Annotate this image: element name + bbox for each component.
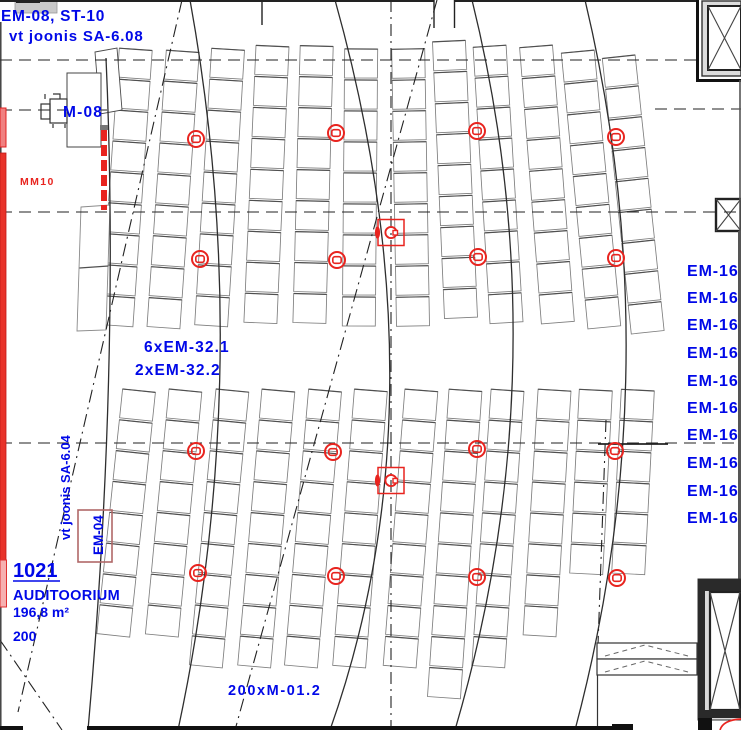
svg-text:MM10: MM10 xyxy=(20,176,55,188)
svg-text:EM-16: EM-16 xyxy=(687,290,739,307)
svg-text:EM-16: EM-16 xyxy=(687,400,739,417)
svg-text:6xEM-32.1: 6xEM-32.1 xyxy=(144,339,230,356)
svg-text:200xM-01.2: 200xM-01.2 xyxy=(228,683,321,699)
svg-text:EM-16: EM-16 xyxy=(687,455,739,472)
svg-text:2xEM-32.2: 2xEM-32.2 xyxy=(135,362,221,379)
svg-text:EM-16: EM-16 xyxy=(687,483,739,500)
svg-text:EM-16: EM-16 xyxy=(687,345,739,362)
svg-text:EM-16: EM-16 xyxy=(687,317,739,334)
svg-text:EM-16: EM-16 xyxy=(687,373,739,390)
svg-text:vt joonis SA-6.08: vt joonis SA-6.08 xyxy=(9,28,143,45)
svg-text:EM-08, ST-10: EM-08, ST-10 xyxy=(1,8,105,25)
svg-text:200: 200 xyxy=(13,628,37,644)
svg-text:196,8 m²: 196,8 m² xyxy=(13,604,69,620)
svg-text:EM-16: EM-16 xyxy=(687,510,739,527)
svg-text:EM-16: EM-16 xyxy=(687,263,739,280)
svg-text:AUDITOORIUM: AUDITOORIUM xyxy=(13,588,120,604)
svg-text:EM-04: EM-04 xyxy=(91,515,106,555)
svg-text:M-08: M-08 xyxy=(63,104,103,121)
svg-text:EM-16: EM-16 xyxy=(687,427,739,444)
svg-text:1021: 1021 xyxy=(13,560,58,582)
svg-text:vt joonis SA-6.04: vt joonis SA-6.04 xyxy=(58,434,73,540)
